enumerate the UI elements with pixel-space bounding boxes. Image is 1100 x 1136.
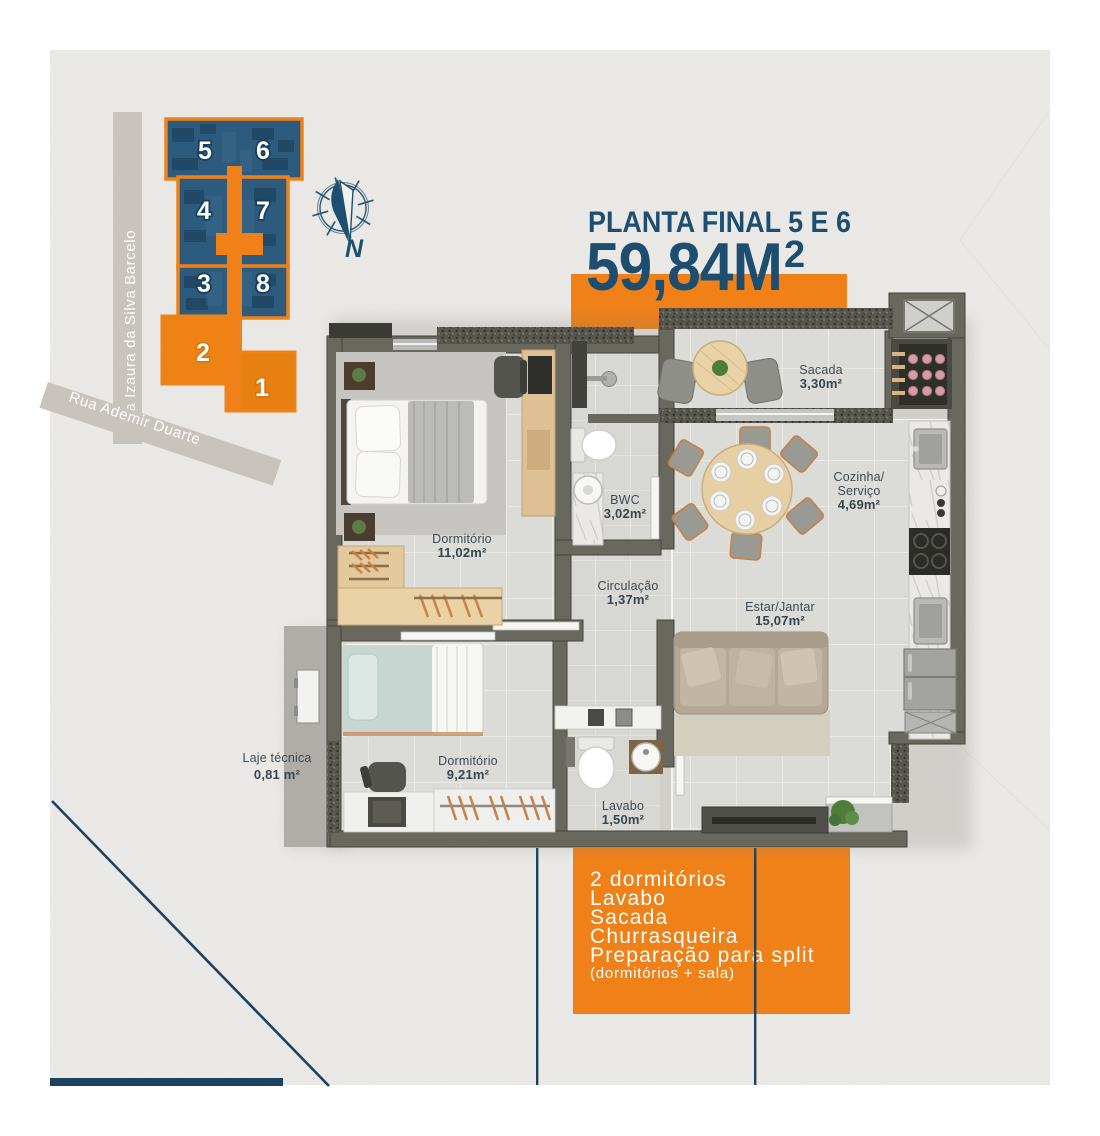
svg-text:Dormitório: Dormitório [432,532,492,546]
svg-text:(dormitórios + sala): (dormitórios + sala) [590,965,735,982]
svg-text:5: 5 [198,137,212,165]
svg-text:2: 2 [784,234,805,276]
svg-text:BWC: BWC [610,493,640,507]
svg-text:Cozinha/: Cozinha/ [834,470,885,484]
svg-text:Sacada: Sacada [799,363,843,377]
svg-text:15,07m²: 15,07m² [755,613,805,628]
svg-text:Rua Izaura da Silva Barcelo: Rua Izaura da Silva Barcelo [122,230,139,432]
svg-text:1: 1 [255,374,269,402]
svg-text:8: 8 [256,270,270,298]
svg-text:1,37m²: 1,37m² [607,592,650,607]
svg-text:9,21m²: 9,21m² [447,767,490,782]
svg-text:3,30m²: 3,30m² [800,376,843,391]
svg-text:4,69m²: 4,69m² [838,497,881,512]
svg-text:Circulação: Circulação [597,579,658,593]
svg-text:59,84M: 59,84M [586,229,782,305]
svg-text:11,02m²: 11,02m² [437,545,487,560]
svg-text:3,02m²: 3,02m² [604,506,647,521]
svg-text:Estar/Jantar: Estar/Jantar [745,600,815,614]
svg-text:N: N [345,235,364,263]
svg-text:1,50m²: 1,50m² [602,812,645,827]
svg-text:0,81 m²: 0,81 m² [254,767,301,782]
svg-text:4: 4 [197,197,211,225]
svg-text:Dormitório: Dormitório [438,754,498,768]
svg-text:Serviço: Serviço [837,484,880,498]
svg-text:6: 6 [256,137,270,165]
svg-text:Lavabo: Lavabo [602,799,644,813]
svg-text:Laje técnica: Laje técnica [242,751,311,765]
svg-text:Preparação para split: Preparação para split [590,944,815,967]
svg-text:2: 2 [196,339,210,367]
svg-text:7: 7 [256,197,270,225]
svg-text:3: 3 [197,270,211,298]
